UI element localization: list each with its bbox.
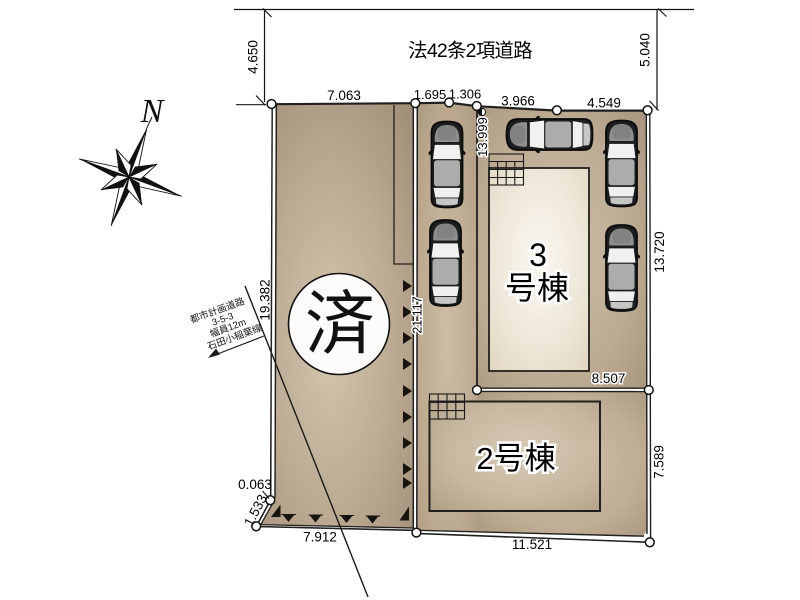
svg-text:1.306: 1.306 bbox=[449, 87, 482, 102]
svg-text:4.650: 4.650 bbox=[246, 40, 261, 74]
svg-text:11.521: 11.521 bbox=[512, 537, 552, 552]
svg-text:7.063: 7.063 bbox=[327, 88, 361, 103]
svg-text:3.966: 3.966 bbox=[501, 94, 535, 109]
svg-text:8.507: 8.507 bbox=[592, 371, 626, 386]
svg-text:1.695: 1.695 bbox=[414, 87, 447, 102]
svg-text:7.912: 7.912 bbox=[303, 530, 337, 545]
svg-text:3: 3 bbox=[529, 237, 547, 273]
svg-text:19.382: 19.382 bbox=[258, 279, 273, 320]
svg-text:法42条2項道路: 法42条2項道路 bbox=[408, 40, 532, 62]
svg-text:N: N bbox=[140, 93, 166, 130]
svg-text:4.549: 4.549 bbox=[587, 96, 621, 111]
svg-text:2号棟: 2号棟 bbox=[476, 441, 555, 476]
svg-text:号棟: 号棟 bbox=[505, 270, 569, 306]
svg-text:7.589: 7.589 bbox=[652, 445, 667, 479]
svg-text:21.117: 21.117 bbox=[411, 296, 425, 333]
svg-text:13.999: 13.999 bbox=[475, 117, 490, 157]
svg-text:済: 済 bbox=[305, 285, 375, 363]
svg-text:13.720: 13.720 bbox=[652, 231, 667, 272]
svg-text:0.063: 0.063 bbox=[238, 477, 272, 492]
svg-text:5.040: 5.040 bbox=[638, 33, 653, 67]
